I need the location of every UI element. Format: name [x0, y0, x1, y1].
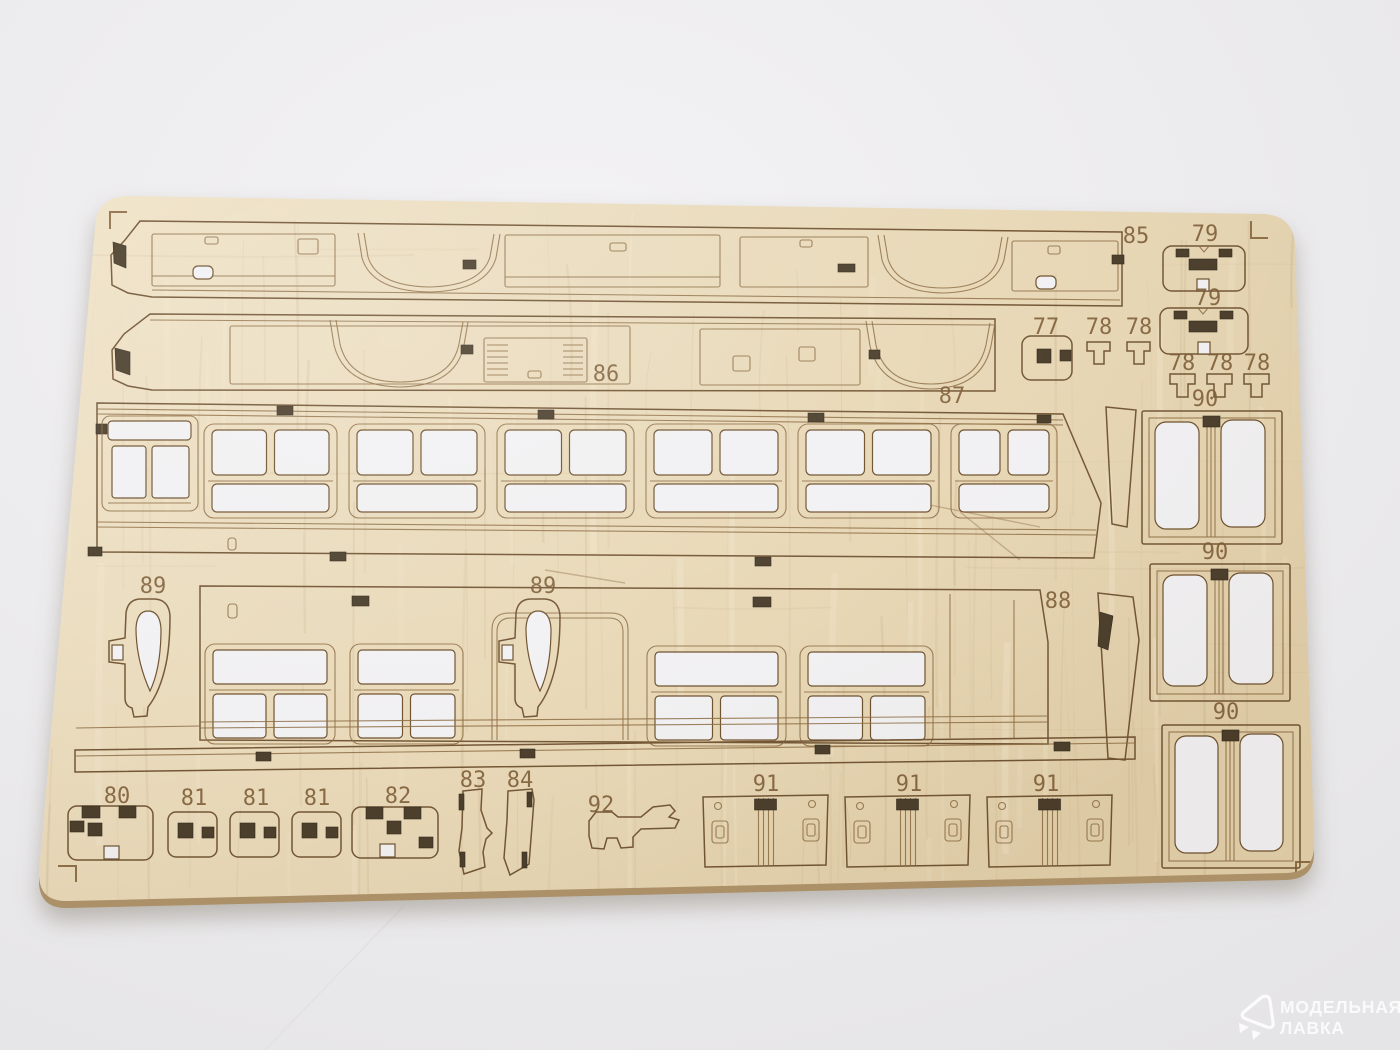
- part-label-91c: 91: [1033, 772, 1060, 797]
- part-label-81c: 81: [304, 786, 331, 811]
- part-label-79b: 79: [1195, 286, 1222, 311]
- part-label-78d: 78: [1207, 351, 1234, 376]
- part-label-83: 83: [460, 768, 487, 793]
- part-label-81a: 81: [181, 786, 208, 811]
- part-label-84: 84: [507, 768, 534, 793]
- part-label-90b: 90: [1202, 540, 1229, 565]
- part-label-78b: 78: [1126, 315, 1153, 340]
- part-label-91b: 91: [896, 772, 923, 797]
- part-label-81b: 81: [243, 786, 270, 811]
- brand-name-line1: МОДЕЛЬНАЯ: [1280, 997, 1400, 1017]
- photo-laser-cut-plywood-sheet: 85 79 79 77 78 78 78 78 78 90 86 87 90 8…: [0, 0, 1400, 1050]
- part-label-87: 87: [939, 384, 966, 409]
- part-label-78c: 78: [1169, 351, 1196, 376]
- part-label-85: 85: [1123, 224, 1150, 249]
- scene-svg: 85 79 79 77 78 78 78 78 78 90 86 87 90 8…: [0, 0, 1400, 1050]
- part-label-89a: 89: [140, 574, 167, 599]
- part-label-82: 82: [385, 784, 412, 809]
- part-label-88: 88: [1045, 589, 1072, 614]
- part-label-77: 77: [1033, 315, 1060, 340]
- part-label-90a: 90: [1192, 387, 1219, 412]
- part-label-86: 86: [593, 362, 620, 387]
- brand-name-line2: ЛАВКА: [1280, 1018, 1345, 1038]
- part-label-91a: 91: [753, 772, 780, 797]
- part-label-92: 92: [588, 793, 615, 818]
- part-label-90c: 90: [1213, 700, 1240, 725]
- part-label-78a: 78: [1086, 315, 1113, 340]
- part-label-79a: 79: [1192, 222, 1219, 247]
- part-label-80: 80: [104, 784, 131, 809]
- part-label-89b: 89: [530, 574, 557, 599]
- part-label-78e: 78: [1244, 351, 1271, 376]
